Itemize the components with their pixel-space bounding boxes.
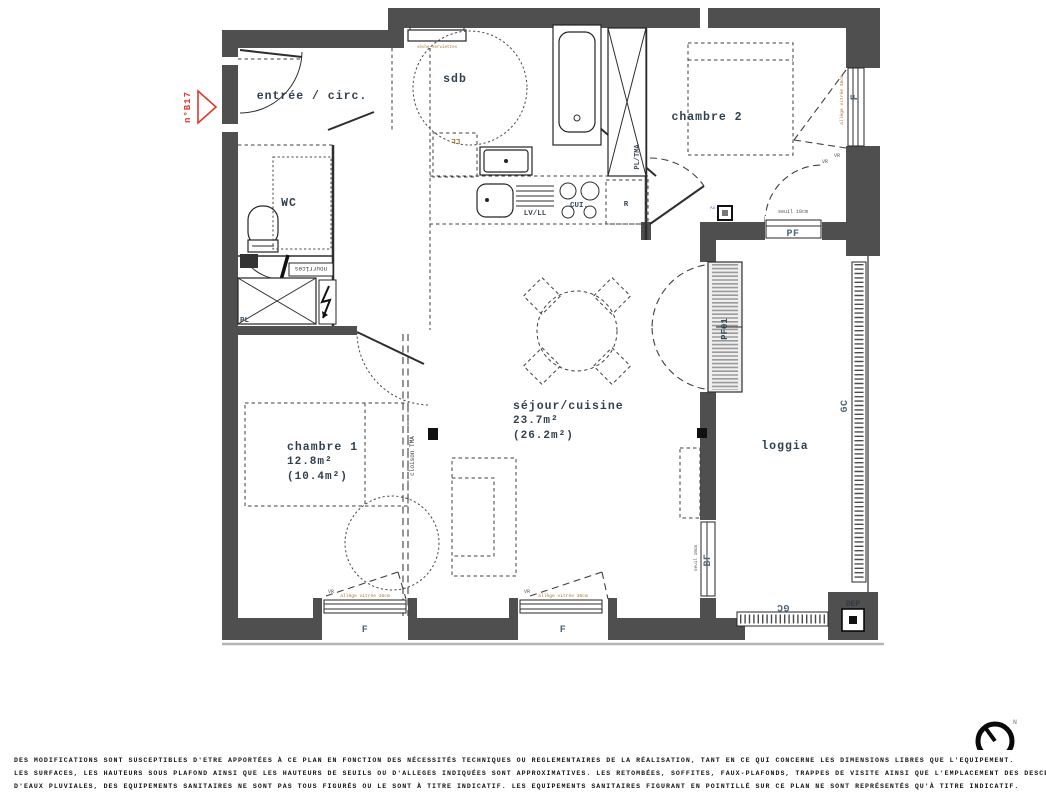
chair [524, 348, 561, 385]
pl-label: PL [240, 317, 250, 325]
sideboard-inner [452, 478, 494, 556]
window-f-label: F [560, 625, 567, 636]
garde-corps-bottom: GC [737, 601, 828, 626]
disclaimer-line-1: DES MODIFICATIONS SONT SUSCEPTIBLES D'ET… [14, 754, 1046, 767]
wc-duct [240, 254, 258, 268]
dashed-fixture [680, 448, 700, 518]
vr-note: VR [834, 153, 840, 159]
wc-zone: nourrices PL [238, 157, 336, 325]
room-area-sejour: 23.7m² [513, 415, 559, 427]
nourrices-label: nourrices [294, 265, 327, 272]
cui-label: CUI. [570, 202, 588, 210]
thermostat-label: Aa [710, 207, 716, 211]
cloison-label: cloison TMA [409, 436, 416, 476]
closet-pl: PL [238, 278, 316, 325]
chair [524, 278, 561, 315]
room-area-alt-chambre1: (10.4m²) [287, 471, 348, 483]
bed-chambre1 [245, 403, 408, 506]
washbasin [480, 147, 532, 175]
window-f-label: F [850, 94, 861, 101]
seuil-note: seuil 10cm [778, 209, 808, 215]
room-label-sdb: sdb [443, 73, 467, 86]
dining-table [537, 291, 617, 371]
allege-note: allège vitrée 36cm [839, 75, 845, 125]
garde-corps-right: GC [840, 262, 866, 582]
floor-plan-svg: F allège vitrée 36cm VR F allège vitrée … [0, 0, 1046, 750]
allege-note: allège vitrée 36cm [538, 593, 588, 599]
dep-label: DEP [846, 600, 861, 609]
chair [594, 348, 631, 385]
pf01-label: PF01 [720, 318, 730, 340]
fridge-slot: R [606, 180, 646, 224]
electrical-panel [319, 280, 336, 324]
bathtub [553, 25, 601, 145]
pl-tma-label: PL/TMA [634, 144, 642, 170]
dishwasher-slot: LV/LL [516, 186, 554, 218]
r-label: R [624, 201, 629, 209]
compass-icon: N [978, 719, 1017, 750]
cooktop: CUI. [560, 182, 599, 218]
unit-marker: n°B17 [183, 91, 216, 123]
ll-label: LL [451, 136, 461, 144]
unit-number: n°B17 [183, 91, 193, 123]
window-f-bottom-right: F allège vitrée 36cm VR [520, 572, 608, 636]
lvll-label: LV/LL [524, 210, 547, 218]
seche-serviettes-label: sèche-serviettes [417, 45, 458, 50]
thermostat-icon: Aa [710, 206, 732, 220]
room-label-loggia: loggia [761, 440, 808, 453]
porte-fenetre-pf01: PF01 [708, 262, 742, 392]
room-area-chambre1: 12.8m² [287, 456, 333, 468]
chair [594, 278, 631, 315]
windows: F allège vitrée 36cm VR F allège vitrée … [324, 68, 864, 636]
towel-radiator: sèche-serviettes [408, 27, 466, 50]
disclaimer: DES MODIFICATIONS SONT SUSCEPTIBLES D'ET… [14, 754, 1046, 793]
entrance-arrow-icon [198, 91, 216, 123]
closet-pl-tma: PL/TMA [608, 28, 646, 176]
window-f-right: F allège vitrée 36cm VR [794, 68, 864, 159]
nourrices-box: nourrices [289, 263, 333, 276]
disclaimer-line-2: LES SURFACES, LES HAUTEURS SOUS PLAFOND … [14, 767, 1046, 780]
allege-note: allège vitrée 36cm [340, 593, 390, 599]
kitchen-sink [477, 184, 513, 217]
compass-north-label: N [1013, 719, 1017, 726]
gc-label: GC [840, 399, 851, 412]
seuil-note: seuil 10cm [694, 544, 699, 571]
chambre1-clearance-circle [345, 496, 439, 590]
room-label-entree: entrée / circ. [257, 90, 368, 103]
floor-plan-page: F allège vitrée 36cm VR F allège vitrée … [0, 0, 1046, 800]
gc-label: GC [776, 601, 789, 612]
socket-icon [428, 428, 438, 440]
bf-label: BF [703, 553, 714, 566]
washing-machine-slot: LL [433, 133, 477, 177]
sideboard [452, 458, 516, 576]
disclaimer-line-3: D'EAUX PLUVIALES, DES EQUIPEMENTS SANITA… [14, 780, 1046, 793]
socket-icon [697, 428, 707, 438]
pf-label: PF [786, 229, 799, 240]
vr-note: VR [822, 159, 828, 165]
room-area-alt-sejour: (26.2m²) [513, 430, 574, 442]
window-f-label: F [362, 625, 369, 636]
room-label-chambre1: chambre 1 [287, 441, 358, 454]
fixtures: sèche-serviettes LL LV/LL [408, 25, 646, 224]
baie-fixe-bf: BF seuil 10cm [694, 520, 716, 598]
vr-note: VR [524, 589, 530, 595]
room-label-chambre2: chambre 2 [671, 111, 742, 124]
room-label-sejour: séjour/cuisine [513, 400, 624, 413]
room-label-wc: WC [281, 197, 297, 210]
